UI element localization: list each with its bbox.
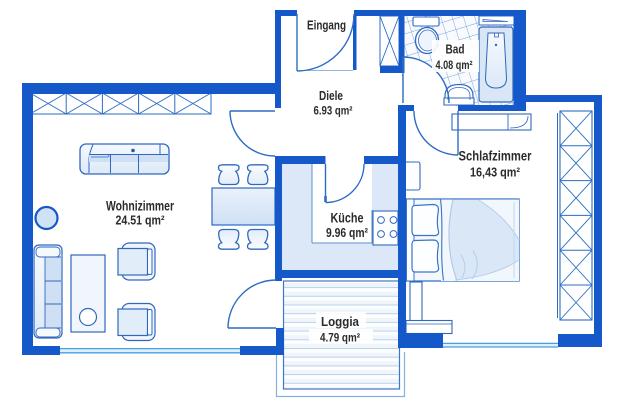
svg-text:Wohnizimmer: Wohnizimmer	[106, 199, 175, 214]
svg-text:9.96 qm²: 9.96 qm²	[326, 226, 368, 240]
svg-text:6.93 qm²: 6.93 qm²	[314, 104, 353, 118]
svg-text:Eingang: Eingang	[307, 19, 346, 33]
svg-text:16,43 qm²: 16,43 qm²	[470, 166, 520, 180]
svg-text:Küche: Küche	[331, 211, 364, 226]
svg-text:Diele: Diele	[319, 88, 343, 103]
svg-text:Bad: Bad	[446, 42, 465, 57]
svg-text:24.51 qm²: 24.51 qm²	[116, 214, 165, 228]
svg-text:4.08 qm²: 4.08 qm²	[436, 58, 473, 72]
svg-text:4.79 qm²: 4.79 qm²	[320, 331, 360, 345]
svg-text:Loggia: Loggia	[321, 314, 360, 329]
svg-text:Schlafzimmer: Schlafzimmer	[459, 149, 533, 164]
